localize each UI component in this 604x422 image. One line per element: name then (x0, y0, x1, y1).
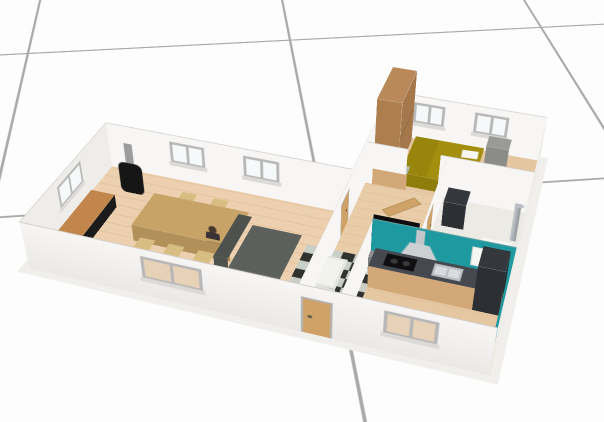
window (140, 256, 203, 292)
door-handle (308, 315, 312, 319)
kitchen-sink (431, 263, 464, 281)
3d-view[interactable] (0, 0, 604, 422)
sink-basin (434, 266, 448, 276)
stove-body (118, 161, 145, 196)
window (169, 141, 205, 169)
window-mullion (169, 265, 174, 283)
window (243, 156, 279, 184)
floor-tiles (0, 0, 604, 422)
cooktop (383, 253, 418, 271)
window (413, 102, 446, 128)
window-mullion (68, 175, 72, 193)
window-mullion (408, 319, 413, 337)
window (383, 310, 440, 345)
window (57, 161, 84, 209)
door-handle (430, 223, 431, 228)
window (473, 112, 510, 138)
sink-basin (447, 269, 461, 279)
window-mullion (185, 147, 189, 164)
window-mullion (427, 107, 431, 123)
window-mullion (489, 117, 494, 133)
door-handle (346, 208, 347, 213)
wardrobe-door-seam (401, 108, 414, 139)
window-mullion (260, 161, 263, 178)
